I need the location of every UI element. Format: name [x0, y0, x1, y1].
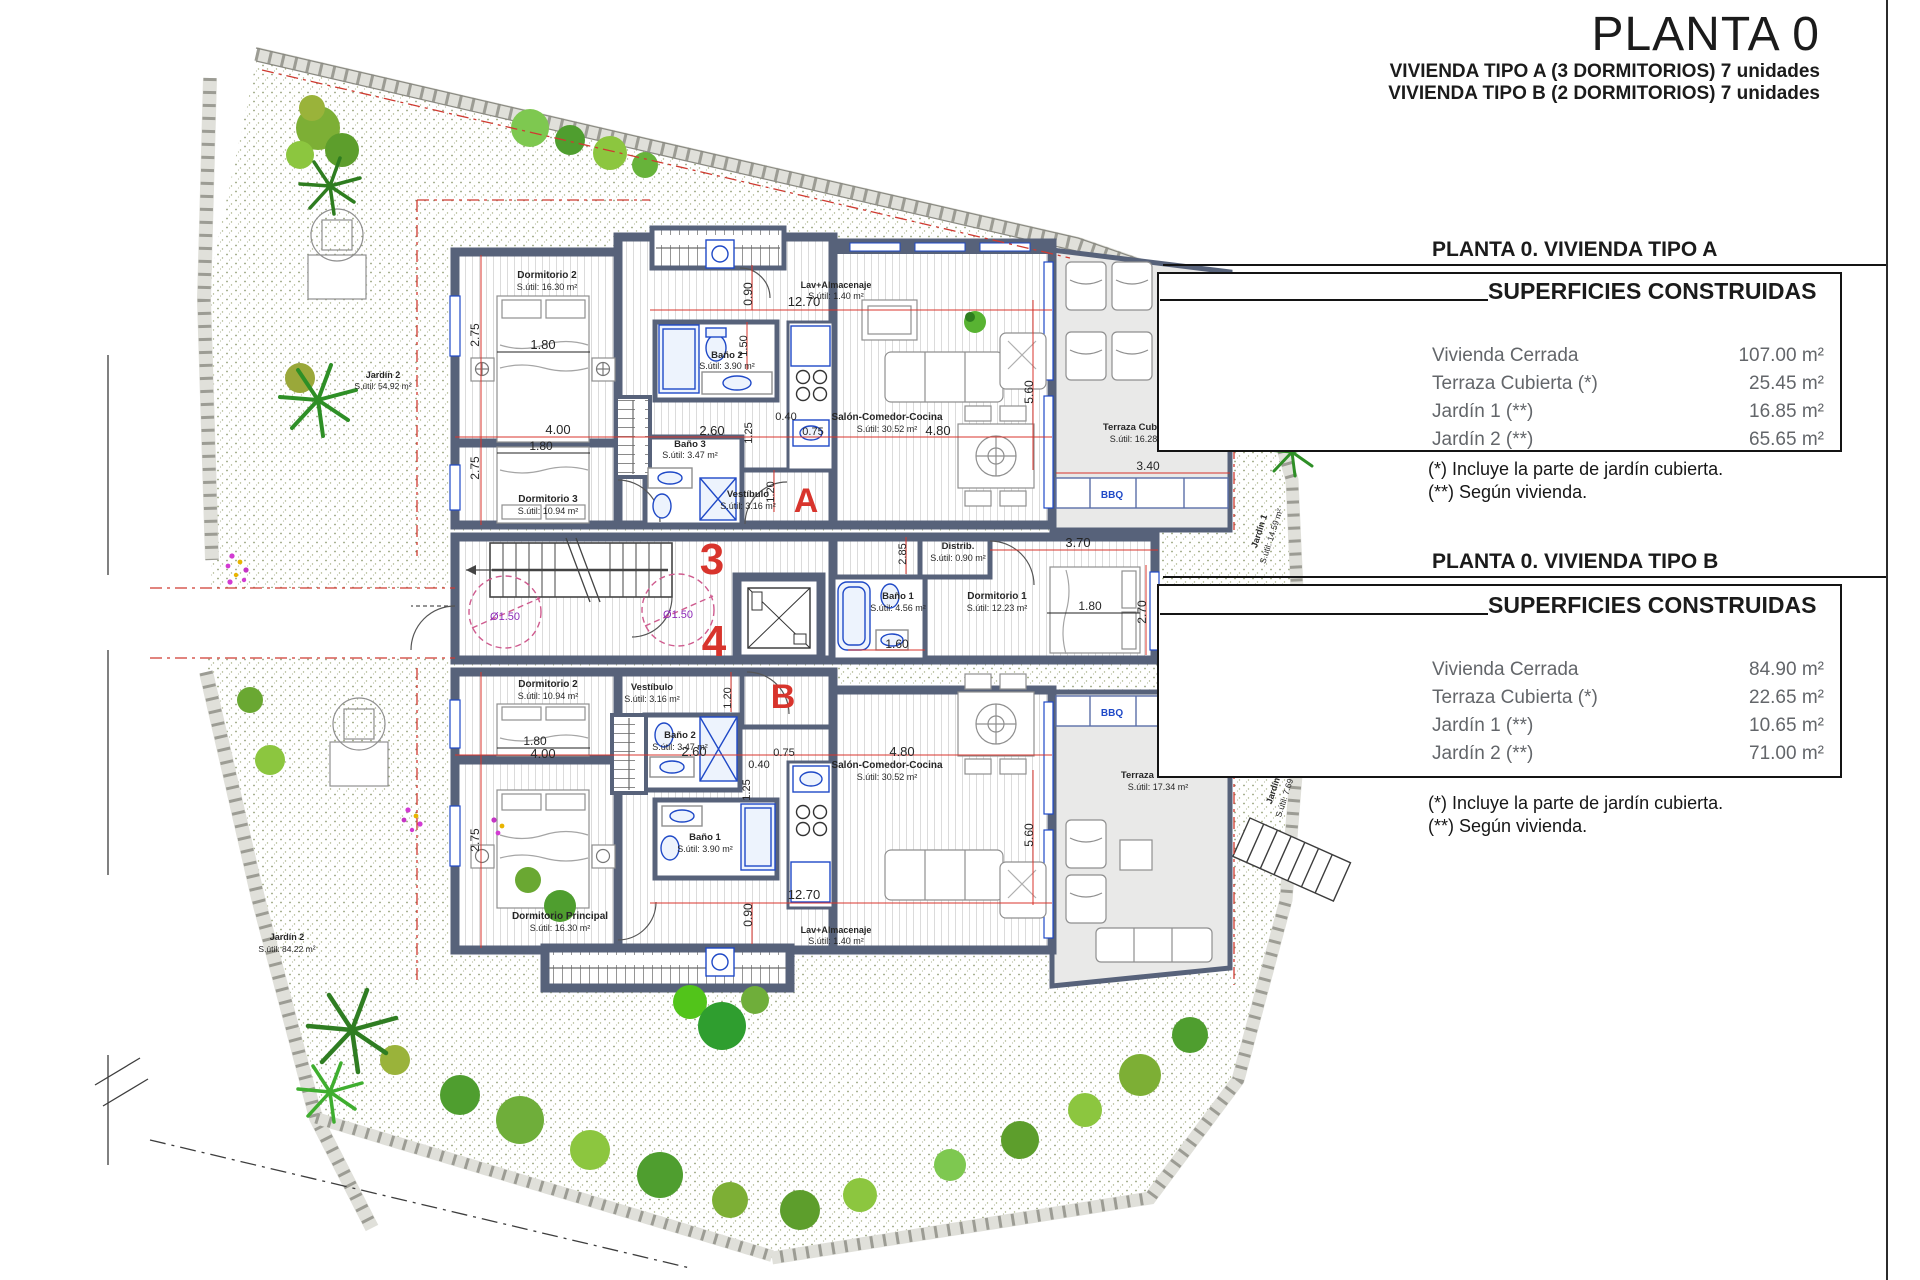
plan-text-label: Lav+Almacenaje [801, 280, 872, 290]
plan-text-label: 12.70 [788, 294, 821, 309]
surface-table-b: Vivienda Cerrada 84.90 m² Terraza Cubier… [1432, 656, 1824, 768]
plan-text-label: Ø1.50 [663, 609, 693, 621]
table-row: Jardín 1 (**) 10.65 m² [1432, 712, 1824, 740]
row-label: Jardín 2 (**) [1432, 740, 1533, 768]
plan-text-label: S.útil: 16.30 m² [530, 923, 591, 933]
plan-text-label: 2.60 [681, 744, 706, 759]
plan-text-label: S.útil: 30.52 m² [857, 424, 918, 434]
surface-table-b-title: SUPERFICIES CONSTRUIDAS [1488, 592, 1816, 619]
plan-text-label: 0.40 [748, 759, 769, 771]
row-label: Jardín 1 (**) [1432, 398, 1533, 426]
surface-table-a: Vivienda Cerrada 107.00 m² Terraza Cubie… [1432, 342, 1824, 454]
plan-text-label: 4.00 [530, 746, 555, 761]
row-label: Jardín 2 (**) [1432, 426, 1533, 454]
plan-text-label: 2.85 [897, 543, 909, 564]
note-line: (**) Según vivienda. [1428, 815, 1723, 838]
row-value: 25.45 m² [1749, 370, 1824, 398]
table-row: Vivienda Cerrada 84.90 m² [1432, 656, 1824, 684]
plan-text-label: 2.75 [468, 828, 482, 852]
plan-text-label: A [794, 482, 819, 520]
row-label: Jardín 1 (**) [1432, 712, 1533, 740]
plan-text-label: Baño 1 [689, 832, 721, 843]
plan-text-label: Vestíbulo [727, 489, 769, 500]
plan-text-label: 4.80 [925, 423, 950, 438]
row-value: 107.00 m² [1738, 342, 1824, 370]
plan-text-label: Baño 1 [882, 591, 914, 602]
section-underline-a [1163, 264, 1886, 266]
plan-text-label: 3.40 [1136, 459, 1160, 473]
plan-text-label: BBQ [1101, 708, 1123, 719]
plan-text-label: Baño 2 [664, 730, 696, 741]
plan-text-label: S.útil: 10.94 m² [518, 506, 579, 516]
plan-text-label: 2.70 [1135, 600, 1149, 624]
plan-text-label: 4 [702, 617, 727, 666]
plan-text-label: 1.20 [722, 687, 734, 708]
floor-plan-sheet: Dormitorio 2S.útil: 16.30 m²Baño 2S.útil… [0, 0, 1920, 1280]
plan-text-label: 1.80 [1078, 599, 1102, 613]
plan-text-label: S.útil: 3.90 m² [677, 844, 733, 854]
plan-text-label: Jardín 2 [270, 932, 305, 942]
table-row: Terraza Cubierta (*) 25.45 m² [1432, 370, 1824, 398]
title-subtitle-a: VIVIENDA TIPO A (3 DORMITORIOS) 7 unidad… [1388, 62, 1820, 82]
plan-text-label: 1.20 [765, 481, 777, 502]
surface-table-b-title-line [1160, 613, 1488, 615]
note-line: (**) Según vivienda. [1428, 481, 1723, 504]
plan-text-label: S.útil: 17.34 m² [1128, 782, 1189, 792]
plan-text-label: S.útil: 10.94 m² [518, 691, 579, 701]
staircase [466, 538, 672, 602]
plan-text-label: B [771, 678, 796, 716]
row-label: Vivienda Cerrada [1432, 656, 1578, 684]
row-value: 10.65 m² [1749, 712, 1824, 740]
elevator [737, 577, 821, 659]
row-value: 84.90 m² [1749, 656, 1824, 684]
row-value: 71.00 m² [1749, 740, 1824, 768]
plan-text-label: 0.75 [773, 747, 794, 759]
plan-text-label: 1.80 [530, 337, 555, 352]
plan-text-label: 0.40 [775, 411, 796, 423]
plan-text-label: Vestíbulo [631, 682, 673, 693]
table-row: Vivienda Cerrada 107.00 m² [1432, 342, 1824, 370]
plan-text-label: 0.90 [741, 282, 755, 306]
section-header-tipo-a: PLANTA 0. VIVIENDA TIPO A [1432, 238, 1717, 262]
plan-text-label: 12.70 [788, 887, 821, 902]
page-title: PLANTA 0 [1388, 10, 1820, 60]
row-label: Terraza Cubierta (*) [1432, 370, 1598, 398]
plan-text-label: 1.25 [743, 422, 755, 443]
plan-text-label: 2.60 [699, 423, 724, 438]
plan-text-label: BBQ [1101, 490, 1123, 501]
plan-text-label: 5.60 [1022, 380, 1036, 404]
section-header-tipo-b: PLANTA 0. VIVIENDA TIPO B [1432, 550, 1718, 574]
entrance-path [118, 588, 458, 658]
plan-text-label: S.útil: 16.30 m² [517, 282, 578, 292]
plan-text-label: 1.25 [741, 779, 753, 800]
plan-text-label: S.útil: 3.90 m² [699, 361, 755, 371]
notes-b: (*) Incluye la parte de jardín cubierta.… [1428, 792, 1723, 838]
row-label: Terraza Cubierta (*) [1432, 684, 1598, 712]
table-row: Terraza Cubierta (*) 22.65 m² [1432, 684, 1824, 712]
plan-text-label: 1.80 [523, 734, 547, 748]
note-line: (*) Incluye la parte de jardín cubierta. [1428, 458, 1723, 481]
plan-text-label: Salón-Comedor-Cocina [831, 760, 943, 771]
plan-text-label: 4.80 [889, 744, 914, 759]
plan-text-label: S.útil: 1.40 m² [808, 936, 864, 946]
plan-text-label: 2.75 [468, 456, 482, 480]
surface-table-a-title-line [1160, 299, 1488, 301]
plan-text-label: S.útil: 0.90 m² [930, 553, 986, 563]
plan-text-label: Dormitorio 2 [517, 270, 577, 281]
note-line: (*) Incluye la parte de jardín cubierta. [1428, 792, 1723, 815]
plan-text-label: Salón-Comedor-Cocina [831, 412, 943, 423]
section-underline-b [1163, 576, 1886, 578]
row-label: Vivienda Cerrada [1432, 342, 1578, 370]
plan-text-label: 5.60 [1022, 823, 1036, 847]
notes-a: (*) Incluye la parte de jardín cubierta.… [1428, 458, 1723, 504]
plan-text-label: 3 [700, 535, 724, 584]
plan-text-label: Jardín 2 [366, 370, 401, 380]
row-value: 65.65 m² [1749, 426, 1824, 454]
plan-text-label: S.útil: 3.16 m² [624, 694, 680, 704]
plan-text-label: S.útil: 84.22 m² [258, 944, 315, 954]
plan-text-label: 2.75 [468, 323, 482, 347]
surface-table-a-title: SUPERFICIES CONSTRUIDAS [1488, 278, 1816, 305]
row-value: 16.85 m² [1749, 398, 1824, 426]
plan-text-label: Ø1.50 [490, 611, 520, 623]
plan-text-label: 1.50 [738, 335, 750, 356]
sheet-border-line [1886, 0, 1888, 1280]
plan-text-label: S.útil: 54.92 m² [354, 381, 411, 391]
plan-text-label: 1.60 [885, 637, 909, 651]
plan-text-label: Dormitorio 2 [518, 679, 578, 690]
plan-text-label: S.útil: 4.56 m² [870, 603, 926, 613]
window-band [833, 240, 1052, 254]
plan-text-label: 4.00 [545, 422, 570, 437]
table-row: Jardín 1 (**) 16.85 m² [1432, 398, 1824, 426]
row-value: 22.65 m² [1749, 684, 1824, 712]
plan-text-label: Dormitorio 1 [967, 591, 1027, 602]
plan-text-label: S.útil: 30.52 m² [857, 772, 918, 782]
table-row: Jardín 2 (**) 71.00 m² [1432, 740, 1824, 768]
title-block: PLANTA 0 VIVIENDA TIPO A (3 DORMITORIOS)… [1388, 10, 1820, 104]
plan-text-label: Lav+Almacenaje [801, 925, 872, 935]
plan-text-label: 0.90 [741, 903, 755, 927]
plan-text-label: 1.80 [529, 439, 553, 453]
title-subtitle-b: VIVIENDA TIPO B (2 DORMITORIOS) 7 unidad… [1388, 84, 1820, 104]
plan-text-label: 0.75 [802, 426, 823, 438]
table-row: Jardín 2 (**) 65.65 m² [1432, 426, 1824, 454]
plan-text-label: Distrib. [942, 541, 975, 552]
plan-text-label: Dormitorio Principal [512, 911, 608, 922]
plan-text-label: Dormitorio 3 [518, 494, 578, 505]
plan-text-label: Baño 3 [674, 439, 706, 450]
plan-text-label: 3.70 [1065, 535, 1090, 550]
plan-text-label: S.útil: 12.23 m² [967, 603, 1028, 613]
plan-text-label: S.útil: 3.47 m² [662, 450, 718, 460]
